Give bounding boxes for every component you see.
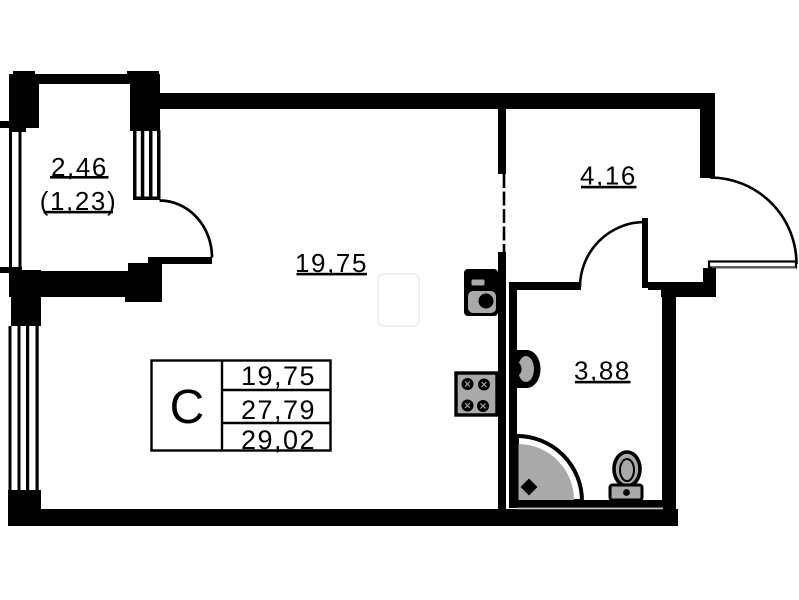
svg-text:С: С	[170, 381, 205, 434]
svg-text:19,75: 19,75	[241, 361, 316, 391]
svg-text:27,79: 27,79	[241, 395, 316, 425]
svg-text:29,02: 29,02	[241, 425, 316, 455]
